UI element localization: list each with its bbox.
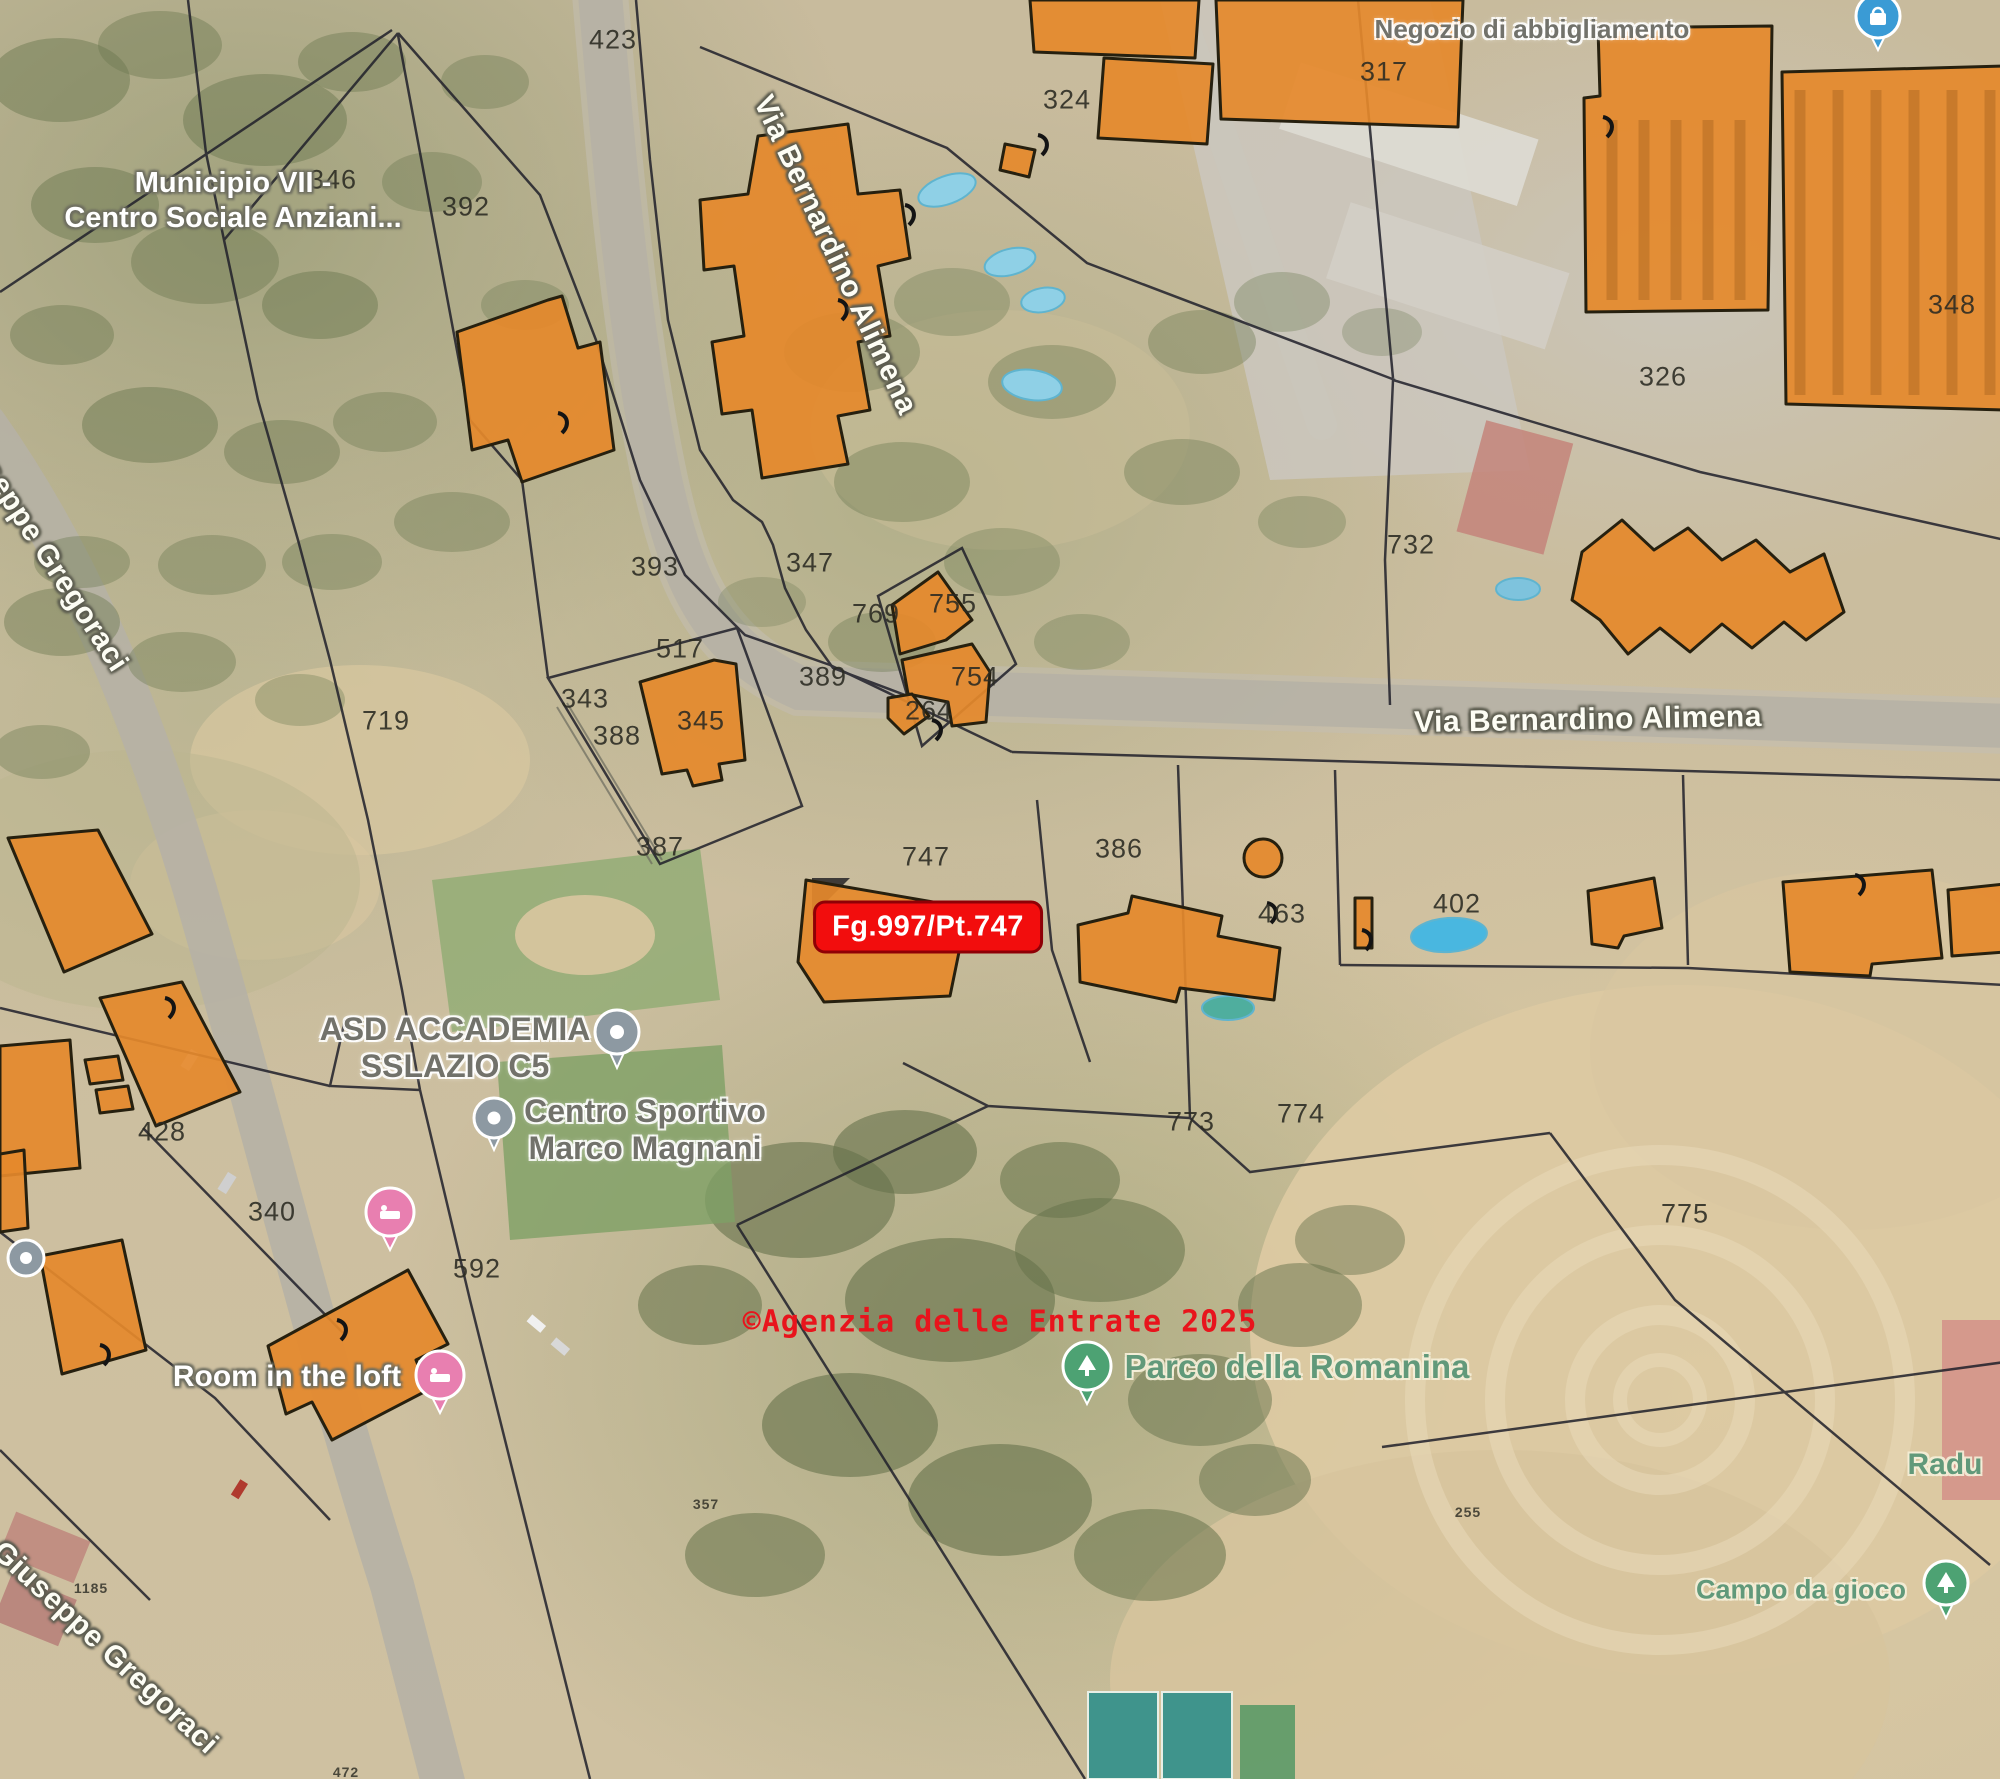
parcel-number: 345 — [677, 706, 725, 737]
dot-icon — [488, 1112, 501, 1125]
parcel-number: 719 — [362, 706, 410, 737]
street-label-alimena-east: Via Bernardino Alimena — [1414, 700, 1762, 740]
poi-label-parco-romanina[interactable]: Parco della Romanina — [1125, 1348, 1470, 1386]
parcel-number: 324 — [1043, 85, 1091, 116]
poi-label-line: SSLAZIO C5 — [361, 1048, 549, 1084]
poi-label-centro-sportivo[interactable]: Centro Sportivo Marco Magnani — [524, 1093, 766, 1167]
poi-pin-left-edge[interactable] — [8, 1240, 44, 1276]
park-pin[interactable] — [1063, 1342, 1111, 1404]
parcel-number: 347 — [786, 548, 834, 579]
poi-label-room-loft[interactable]: Room in the loft — [173, 1359, 401, 1395]
shop-pin[interactable] — [1856, 0, 1900, 50]
building-footprint — [0, 1150, 28, 1232]
parcel-number: 255 — [1455, 1504, 1481, 1520]
building-footprint — [1000, 144, 1035, 177]
map-overlay — [0, 0, 2000, 1779]
parcel-number: 326 — [1639, 362, 1687, 393]
building-footprint — [1948, 884, 2000, 956]
parcel-number: 472 — [333, 1764, 359, 1779]
parcel-number: 774 — [1277, 1099, 1325, 1130]
parcel-number: 387 — [636, 832, 684, 863]
parcel-number: 402 — [1433, 889, 1481, 920]
map-attribution: ©Agenzia delle Entrate 2025 — [743, 1305, 1258, 1340]
poi-label-campo-gioco[interactable]: Campo da gioco — [1696, 1575, 1906, 1606]
parcel-number: 264 — [905, 696, 953, 727]
poi-label-line: Centro Sportivo — [524, 1093, 766, 1129]
building-footprint — [1030, 0, 1199, 58]
poi-label-line: ASD ACCADEMIA — [320, 1011, 591, 1047]
building-footprint — [96, 1086, 133, 1113]
poi-label-line: Municipio VII - — [135, 167, 332, 199]
parcel-number: 1185 — [74, 1580, 108, 1596]
parcel-number: 388 — [593, 721, 641, 752]
poi-label-radu-cut[interactable]: Radu — [1908, 1448, 1983, 1482]
parcel-number: 754 — [951, 662, 999, 693]
poi-label-asd-accademia[interactable]: ASD ACCADEMIA SSLAZIO C5 — [320, 1011, 591, 1085]
parcel-number: 592 — [453, 1254, 501, 1285]
parcel-number: 386 — [1095, 834, 1143, 865]
parcel-number: 423 — [589, 25, 637, 56]
parcel-number: 428 — [138, 1117, 186, 1148]
parcel-number: 775 — [1661, 1199, 1709, 1230]
parcel-number: 517 — [656, 634, 704, 665]
parcel-number: 392 — [442, 192, 490, 223]
poi-label-negozio[interactable]: Negozio di abbigliamento — [1375, 15, 1690, 45]
building-footprint — [1244, 839, 1282, 877]
building-footprint — [85, 1056, 123, 1084]
building-footprint — [1098, 58, 1213, 144]
parcel-number: 773 — [1167, 1107, 1215, 1138]
parcel-number: 389 — [799, 662, 847, 693]
building-footprint — [1782, 66, 2000, 410]
parcel-number: 755 — [929, 589, 977, 620]
dot-icon — [20, 1252, 32, 1264]
dot-icon — [610, 1025, 624, 1039]
highlighted-parcel-badge: Fg.997/Pt.747 — [813, 901, 1043, 954]
hotel-pin[interactable] — [416, 1351, 464, 1413]
building-footprint — [40, 1240, 146, 1374]
poi-label-line: Centro Sociale Anziani... — [64, 202, 401, 234]
parcel-number: 393 — [631, 552, 679, 583]
parcel-number: 769 — [852, 599, 900, 630]
parcel-number: 747 — [902, 842, 950, 873]
hotel-pin[interactable] — [366, 1188, 414, 1250]
store-name-label[interactable]: ERMUDA — [1659, 0, 1862, 6]
parcel-number: 317 — [1360, 57, 1408, 88]
parcel-number: 463 — [1258, 899, 1306, 930]
cadastral-map[interactable]: 423 346 392 324 317 348 326 732 393 347 … — [0, 0, 2000, 1779]
parcel-number: 340 — [248, 1197, 296, 1228]
parcel-number: 357 — [693, 1496, 719, 1512]
building-footprint — [1572, 520, 1844, 654]
poi-label-line: Marco Magnani — [529, 1130, 762, 1166]
poi-label-municipio[interactable]: Municipio VII - Centro Sociale Anziani..… — [64, 166, 401, 236]
parcel-number: 348 — [1928, 290, 1976, 321]
parcel-number: 343 — [561, 684, 609, 715]
parcel-number: 732 — [1387, 530, 1435, 561]
building-footprint — [1078, 896, 1280, 1002]
